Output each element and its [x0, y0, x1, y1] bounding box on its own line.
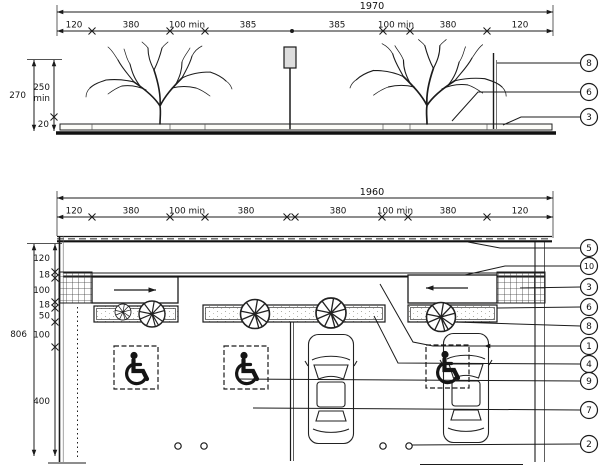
leader-line	[237, 379, 581, 381]
walkway-left	[92, 277, 178, 303]
dim-segment-label: 100 min	[169, 207, 205, 217]
road-edge-band	[57, 237, 552, 242]
car-top-view	[305, 335, 357, 444]
dim-segment-label: 380	[123, 207, 140, 217]
tree-plan-icon	[115, 304, 131, 320]
callout-number: 5	[586, 244, 592, 254]
dim-segment-label: 120	[512, 21, 529, 31]
elevation-height-dimensions: 270 250 min 20	[9, 60, 62, 132]
dim-segment-label: 380	[440, 21, 457, 31]
dim-segment-label: 385	[240, 21, 257, 31]
slab-thickness-label: 20	[38, 120, 50, 130]
walkway-right	[408, 275, 497, 303]
plan-total-dim-label: 1960	[360, 187, 384, 198]
leader-line	[253, 408, 581, 410]
tree-plan-icon	[241, 300, 270, 329]
elevation-view: 1970 120 380 100 min 385 385 100 min 380…	[9, 1, 597, 133]
leader-line	[412, 444, 581, 445]
technical-drawing-page: 1970 120 380 100 min 385 385 100 min 380…	[0, 0, 605, 473]
callout-number: 8	[586, 59, 592, 69]
tree-elevation-icon	[350, 40, 506, 124]
elevation-callouts: 8 6 3	[581, 55, 598, 126]
wheelchair-icon	[127, 352, 147, 384]
depth-total-label: 806	[10, 330, 27, 340]
tree-plan-icon	[139, 301, 165, 327]
depth-segment-label: 18	[39, 301, 50, 311]
leader-line	[497, 307, 581, 308]
sign-post	[284, 47, 296, 129]
callout-number: 1	[586, 342, 592, 352]
pavement-slab	[56, 124, 556, 133]
tree-plan-icon	[427, 303, 456, 332]
wheelchair-icon	[438, 351, 458, 383]
plan-segment-dimensions: 120 380 100 min 380 380 100 min 380 120	[57, 207, 553, 221]
callout-number: 6	[586, 88, 592, 98]
depth-segment-label: 100	[33, 331, 50, 341]
boundary-post	[494, 53, 497, 129]
tree-elevation-icon	[86, 42, 232, 124]
dim-segment-label: 100 min	[169, 21, 205, 31]
leader-line	[455, 322, 581, 326]
callout-number: 2	[586, 440, 592, 450]
wheel-stop-dot	[201, 443, 207, 449]
depth-segment-label: 400	[33, 397, 50, 407]
callout-number: 6	[586, 303, 592, 313]
elevation-segment-dimensions: 120 380 100 min 385 385 100 min 380 120	[57, 21, 553, 35]
dim-segment-label: 100 min	[377, 207, 413, 217]
height-min-unit-label: min	[33, 94, 50, 104]
callout-number: 8	[586, 322, 592, 332]
depth-segment-label: 50	[39, 312, 51, 322]
dim-segment-label: 120	[66, 21, 83, 31]
hatched-crossing-left	[59, 272, 92, 303]
height-total-label: 270	[9, 91, 26, 101]
depth-segment-label: 18	[39, 271, 50, 281]
callout-number: 9	[586, 377, 592, 387]
elevation-leader-lines	[452, 63, 581, 125]
dim-segment-label: 120	[512, 207, 529, 217]
callout-number: 7	[586, 406, 592, 416]
dim-segment-label: 100 min	[378, 21, 414, 31]
accessible-stall-marking	[224, 346, 268, 389]
planter-strip-middle	[203, 305, 385, 322]
callout-number: 3	[586, 113, 592, 123]
depth-segment-label: 120	[33, 254, 50, 264]
plan-view: 1960 120 380 100 min 380 380 100 min 380…	[10, 187, 597, 465]
dim-segment-label: 380	[440, 207, 457, 217]
plan-callouts: 5 10 3 6 8 1 4 9 7 2	[581, 240, 598, 453]
callout-number: 3	[586, 283, 592, 293]
wheel-stop-dot	[175, 443, 181, 449]
tree-plan-icon	[316, 298, 346, 328]
parking-layout-drawing: 1970 120 380 100 min 385 385 100 min 380…	[0, 0, 605, 473]
dim-segment-label: 380	[123, 21, 140, 31]
stall-divider-line	[291, 322, 294, 461]
callout-number: 10	[584, 262, 594, 271]
callout-number: 4	[586, 360, 592, 370]
dim-segment-label: 380	[238, 207, 255, 217]
dim-segment-label: 120	[66, 207, 83, 217]
leader-line	[468, 242, 581, 248]
wheel-stop-dot	[406, 443, 412, 449]
accessible-stall-marking	[114, 346, 158, 389]
boundary-lines	[48, 236, 545, 465]
plan-depth-dimensions: 806 120 18 100 18 50 100 400	[10, 244, 62, 457]
wheel-stop-dot	[380, 443, 386, 449]
depth-segment-label: 100	[33, 286, 50, 296]
dim-segment-label: 380	[330, 207, 347, 217]
dim-segment-label: 385	[329, 21, 346, 31]
height-min-label: 250	[33, 83, 50, 93]
elevation-total-dim-label: 1970	[360, 1, 384, 12]
